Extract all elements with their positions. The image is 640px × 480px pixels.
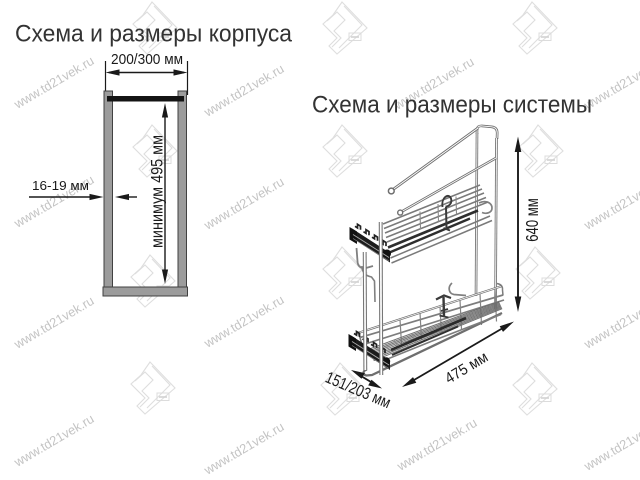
svg-text:www.td21vek.ru: www.td21vek.ru — [201, 419, 287, 478]
svg-text:www.td21vek.ru: www.td21vek.ru — [581, 293, 640, 352]
svg-text:16-19 мм: 16-19 мм — [32, 179, 89, 193]
svg-text:минимум 495 мм: минимум 495 мм — [149, 135, 167, 248]
svg-text:www.td21vek.ru: www.td21vek.ru — [11, 411, 97, 470]
svg-text:www.td21vek.ru: www.td21vek.ru — [11, 293, 97, 352]
svg-text:200/300 мм: 200/300 мм — [111, 51, 183, 68]
svg-text:www.td21vek.ru: www.td21vek.ru — [581, 415, 640, 474]
svg-text:www.td21vek.ru: www.td21vek.ru — [201, 61, 287, 120]
svg-text:www.td21vek.ru: www.td21vek.ru — [394, 415, 480, 474]
svg-text:www.td21vek.ru: www.td21vek.ru — [11, 53, 97, 112]
svg-text:www.td21vek.ru: www.td21vek.ru — [201, 174, 287, 233]
svg-text:Схема и размеры корпуса: Схема и размеры корпуса — [15, 21, 293, 48]
svg-text:640 мм: 640 мм — [522, 198, 542, 242]
svg-text:www.td21vek.ru: www.td21vek.ru — [201, 292, 287, 351]
svg-text:475 мм: 475 мм — [442, 349, 491, 388]
svg-text:www.td21vek.ru: www.td21vek.ru — [581, 174, 640, 233]
svg-text:Схема и размеры системы: Схема и размеры системы — [312, 92, 592, 119]
